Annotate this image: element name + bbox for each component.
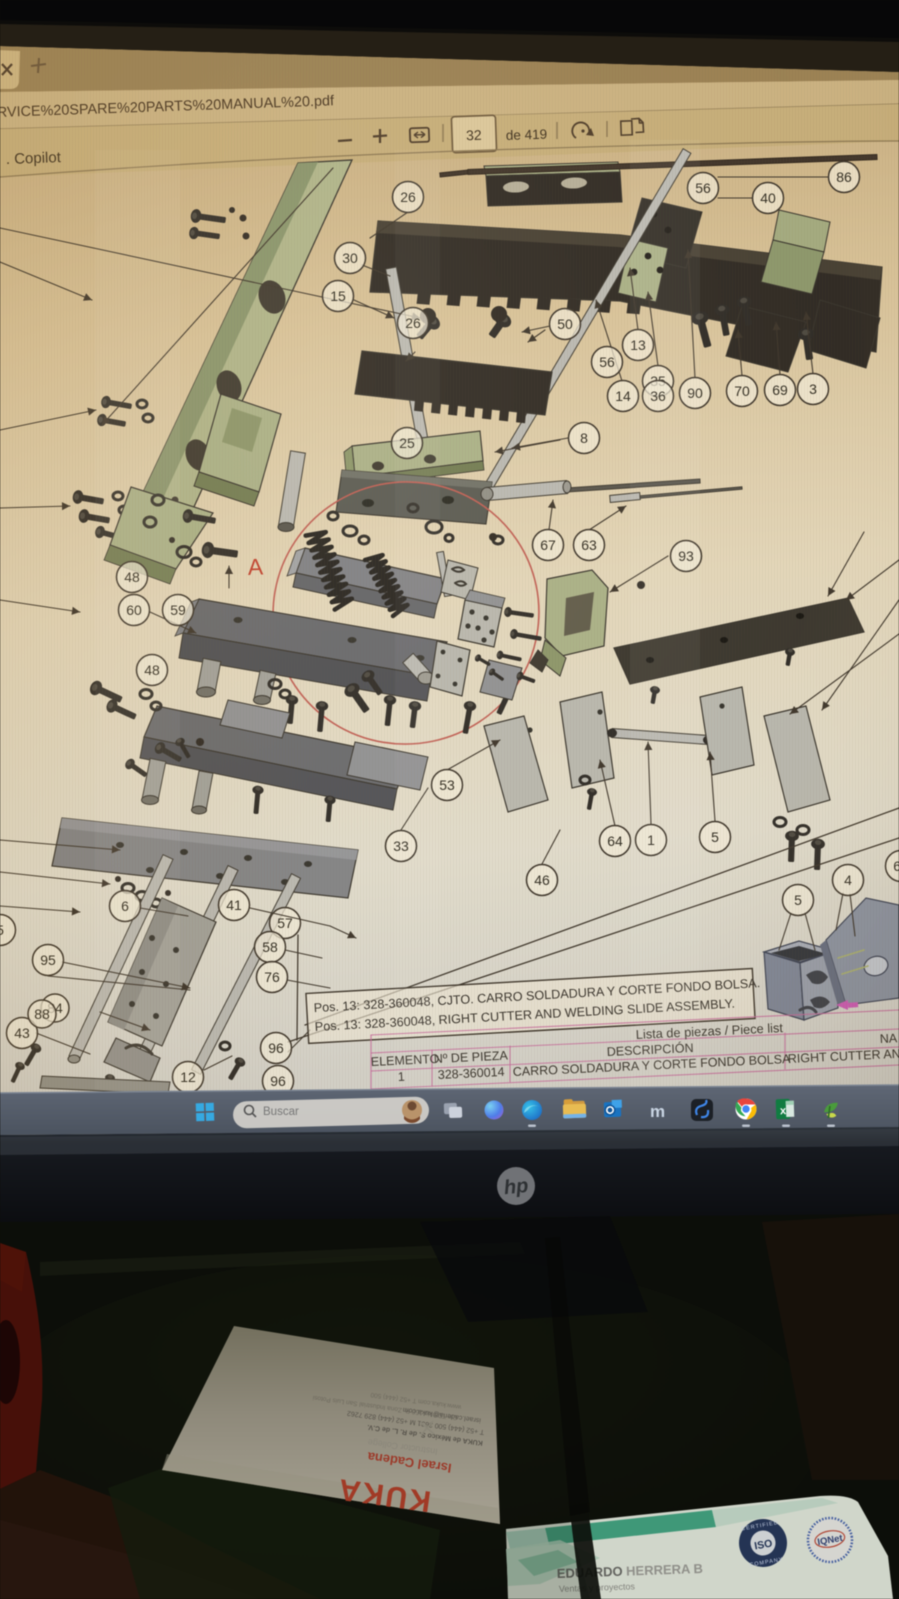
svg-text:hp: hp [503, 1175, 530, 1199]
svg-text:m: m [650, 1102, 665, 1121]
svg-text:Buscar: Buscar [263, 1106, 299, 1118]
